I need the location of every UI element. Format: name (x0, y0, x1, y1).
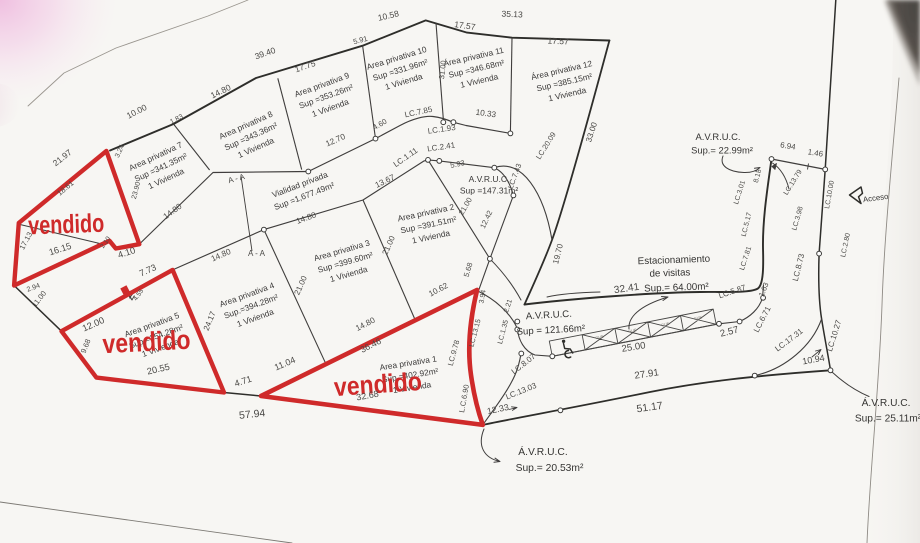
svg-text:de visitas: de visitas (649, 267, 690, 279)
svg-text:17.57: 17.57 (547, 35, 569, 46)
svg-text:A - A: A - A (248, 249, 266, 258)
svg-text:Sup.= 22.99m²: Sup.= 22.99m² (691, 145, 753, 156)
svg-text:A.V.R.U.C.: A.V.R.U.C. (696, 131, 741, 142)
svg-text:Á.V.R.U.C.: Á.V.R.U.C. (518, 445, 567, 458)
svg-text:35.13: 35.13 (501, 8, 523, 19)
svg-text:Á.V.R.U.C.: Á.V.R.U.C. (862, 396, 911, 409)
svg-text:vendido: vendido (102, 325, 191, 360)
svg-text:vendido: vendido (28, 208, 105, 241)
svg-text:Sup.= 20.53m²: Sup.= 20.53m² (516, 463, 584, 474)
svg-text:A.V.R.U.C.: A.V.R.U.C. (469, 174, 510, 184)
svg-text:Sup.= 25.11m²: Sup.= 25.11m² (855, 414, 920, 425)
svg-text:Sup.= 64.00m²: Sup.= 64.00m² (644, 281, 710, 294)
